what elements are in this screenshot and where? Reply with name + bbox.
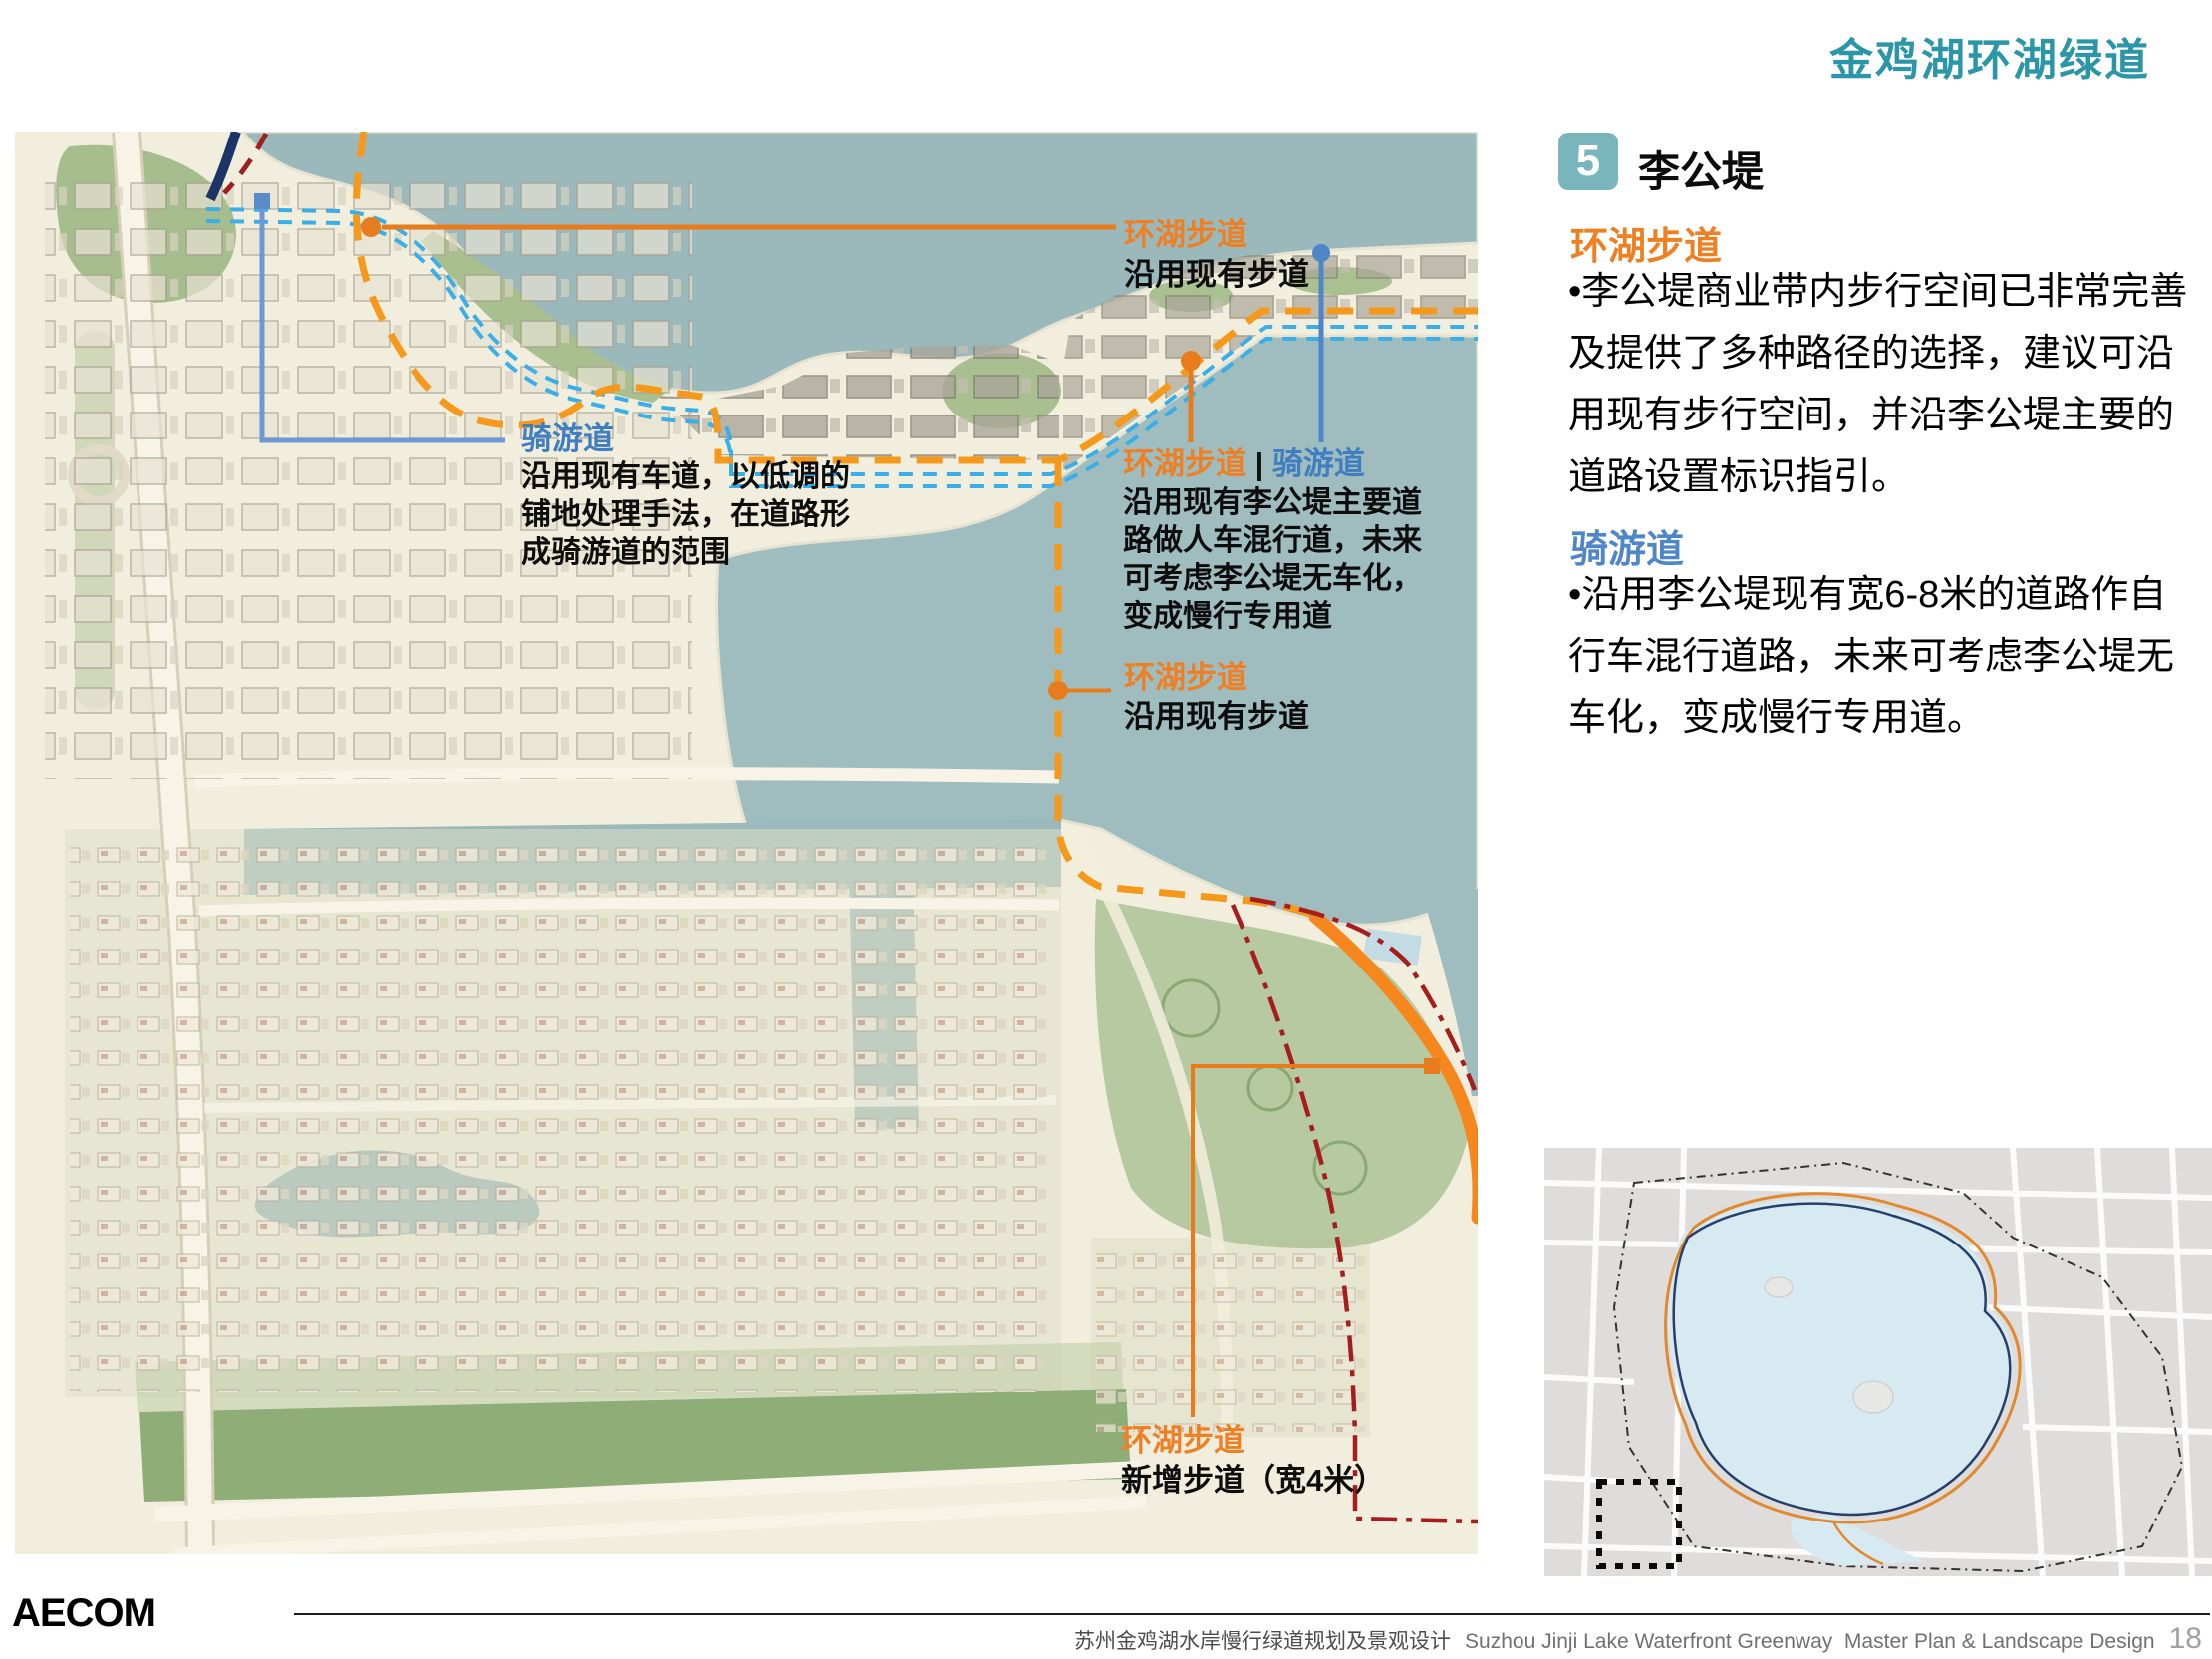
aerial-map-graphic xyxy=(15,132,1478,1554)
footer: 苏州金鸡湖水岸慢行绿道规划及景观设计 Suzhou Jinji Lake Wat… xyxy=(1074,1622,2202,1656)
leader-node-orange xyxy=(1424,1058,1440,1074)
footer-title-en: Suzhou Jinji Lake Waterfront Greenway Ma… xyxy=(1465,1630,2155,1654)
page-title: 金鸡湖环湖绿道 xyxy=(1829,24,2150,88)
annotation-bikeway: 骑游道 沿用现有车道，以低调的 铺地处理手法，在道路形 成骑游道的范围 xyxy=(521,420,850,572)
footer-divider xyxy=(294,1613,2210,1615)
annotation-walkway-new: 环湖步道 新增步道（宽4米） xyxy=(1121,1421,1385,1501)
villa-blocks xyxy=(70,834,1051,1392)
walkway-section-text: •李公堤商业带内步行空间已非常完善 及提供了多种路径的选择，建议可沿 用现有步行… xyxy=(1568,261,2212,508)
annotation-title: 环湖步道 xyxy=(1124,658,1309,697)
leader-dot-orange xyxy=(1048,681,1068,700)
annotation-title: 环湖步道 xyxy=(1124,215,1309,255)
section-number-badge: 5 xyxy=(1558,133,1618,190)
leader-dot-orange xyxy=(1181,351,1201,371)
annotation-title: 环湖步道 | 骑游道 xyxy=(1123,444,1422,484)
leader-dot-blue xyxy=(1312,244,1330,262)
overview-island xyxy=(1853,1381,1893,1413)
aerial-map: 环湖步道 沿用现有步道 骑游道 沿用现有车道，以低调的 铺地处理手法，在道路形 … xyxy=(15,132,1478,1554)
section-heading: 李公堤 xyxy=(1638,138,1764,199)
leader-dot-orange xyxy=(361,217,381,237)
page-number: 18 xyxy=(2169,1622,2202,1656)
villa-blocks-east xyxy=(1096,1243,1365,1432)
annotation-walkway-top: 环湖步道 沿用现有步道 xyxy=(1124,215,1309,295)
overview-island xyxy=(1765,1277,1793,1297)
annotation-walk-bike: 环湖步道 | 骑游道 沿用现有李公堤主要道 路做人车混行道，未来 可考虑李公堤无… xyxy=(1123,444,1422,636)
aecom-logo: AECOM xyxy=(12,1591,155,1636)
bikeway-section-text: •沿用李公堤现有宽6-8米的道路作自 行车混行道路，未来可考虑李公堤无 车化，变… xyxy=(1568,564,2212,749)
annotation-title: 环湖步道 xyxy=(1121,1421,1385,1461)
annotation-walkway-mid: 环湖步道 沿用现有步道 xyxy=(1124,658,1309,737)
overview-map xyxy=(1544,1148,2212,1576)
footer-title-zh: 苏州金鸡湖水岸慢行绿道规划及景观设计 xyxy=(1074,1625,1451,1655)
annotation-title: 骑游道 xyxy=(521,420,850,458)
leader-node-blue xyxy=(254,193,270,209)
